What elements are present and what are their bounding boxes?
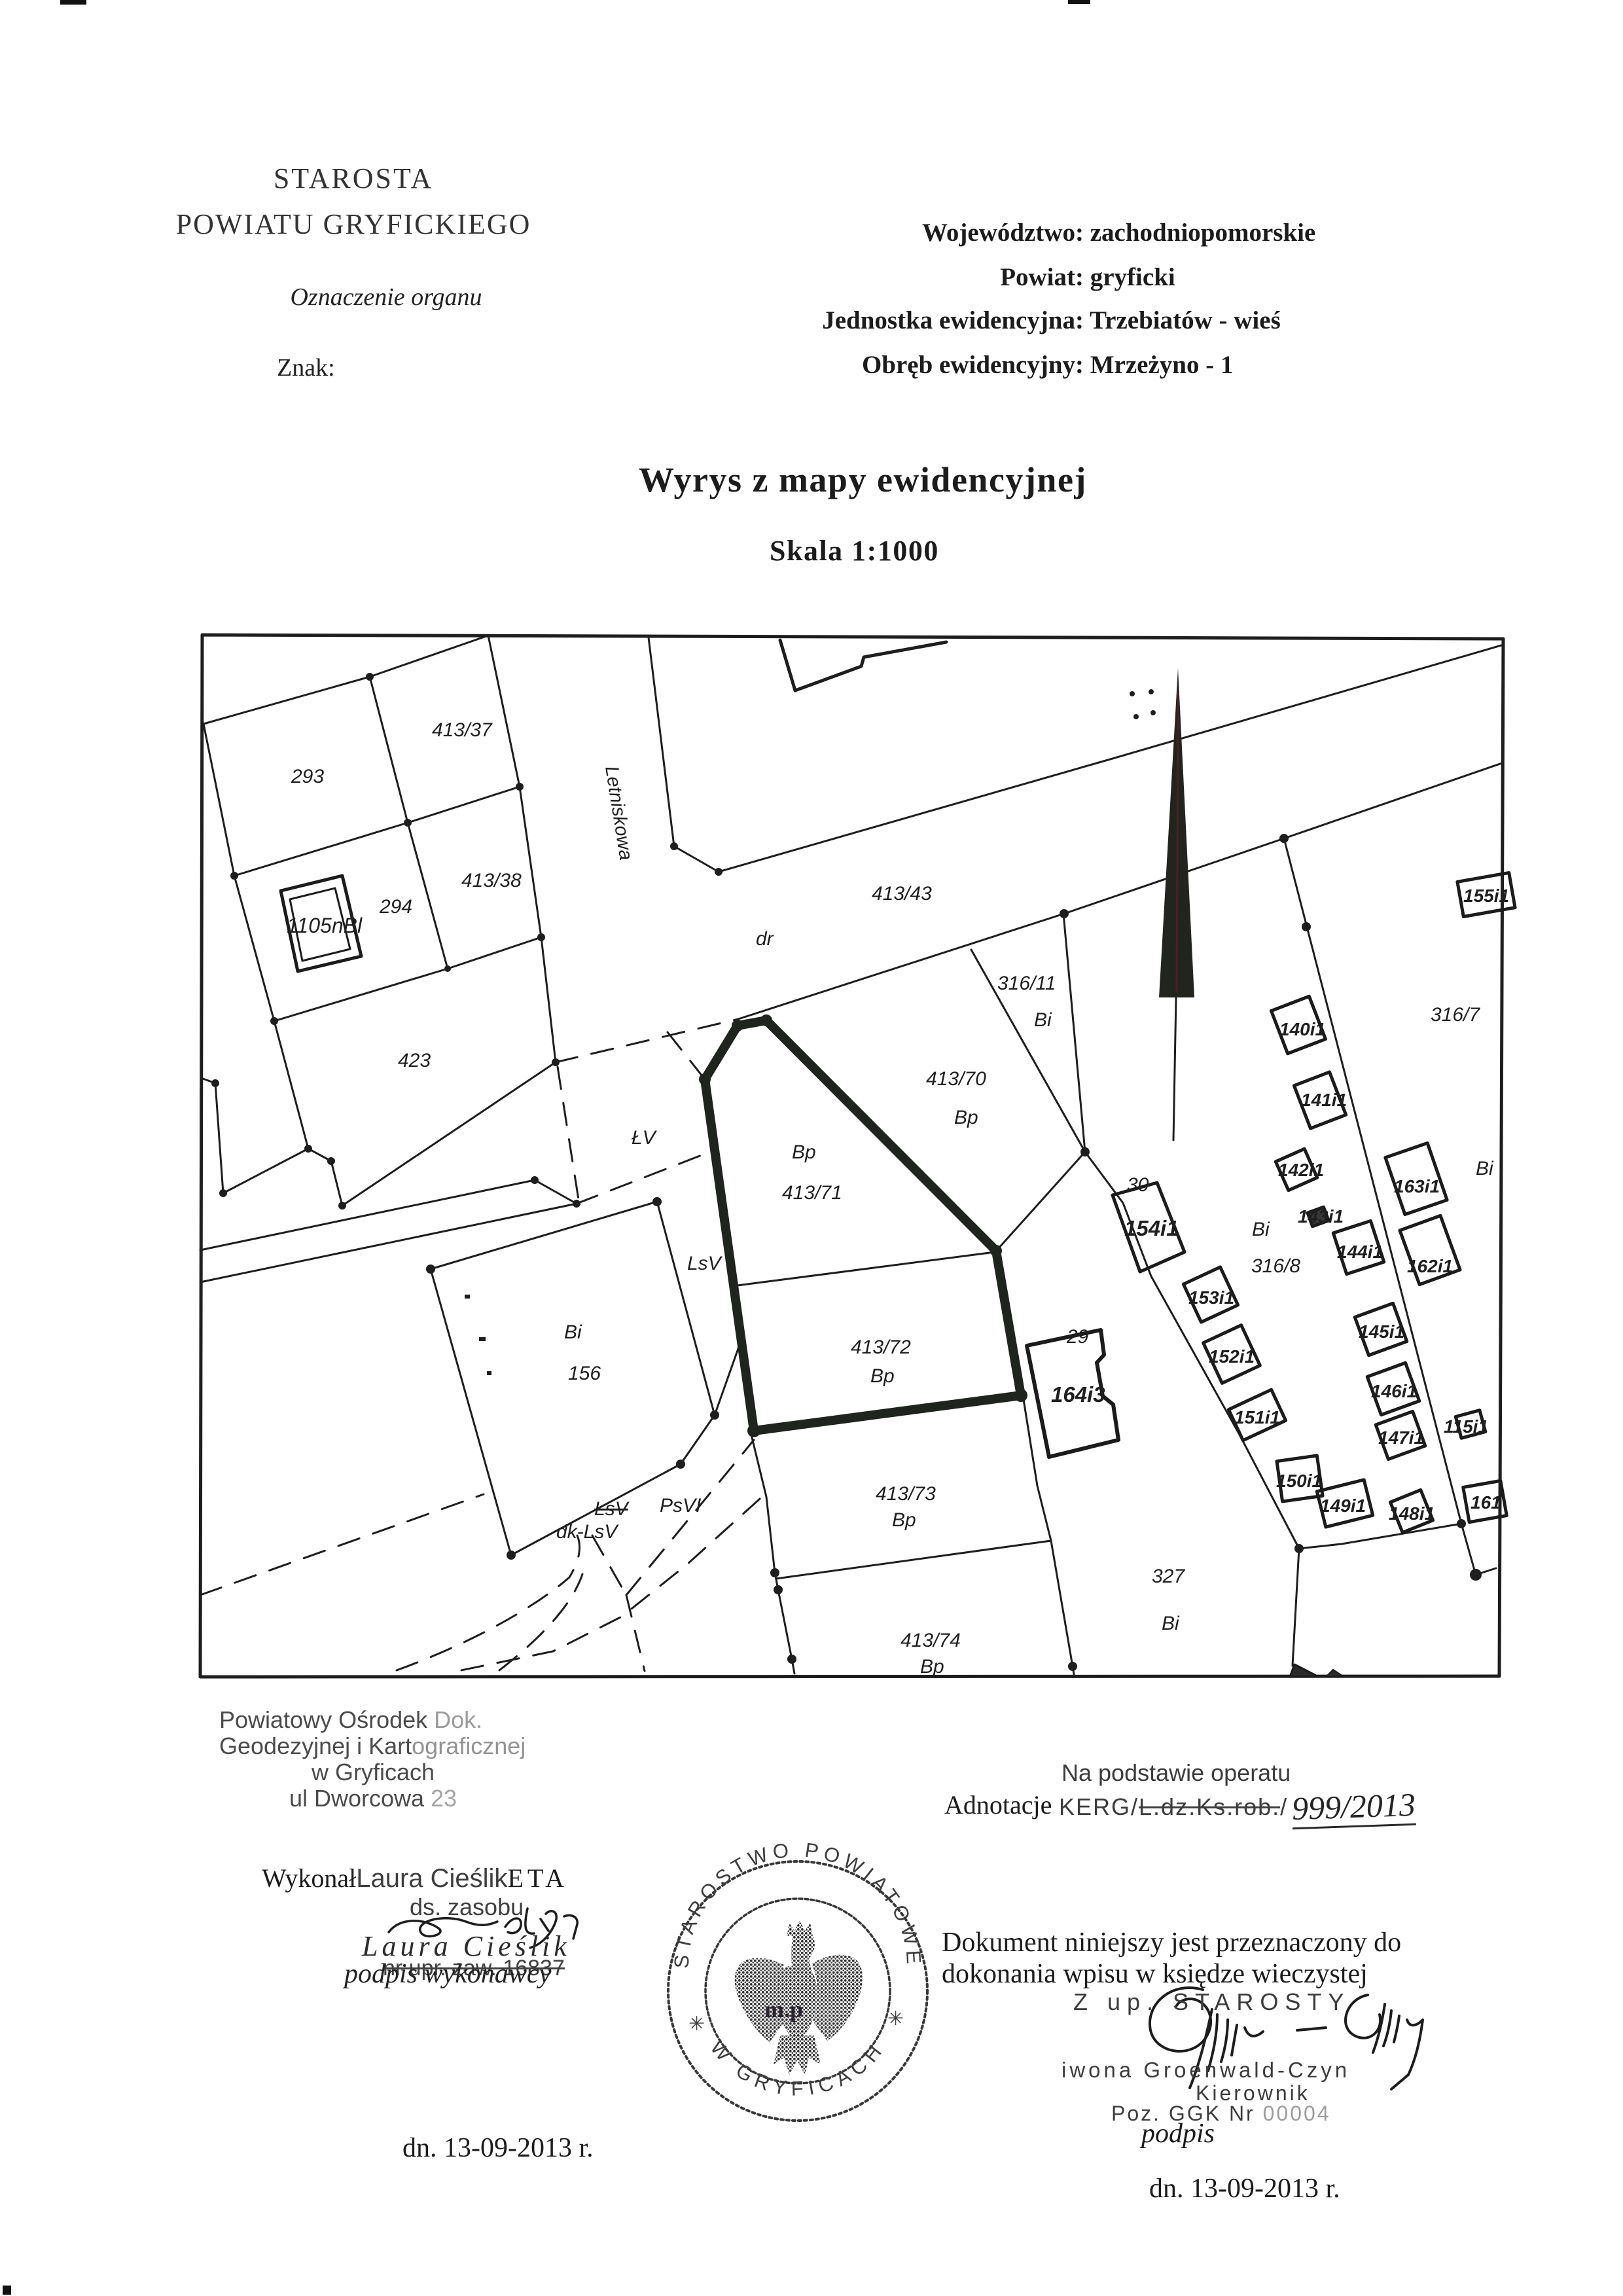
svg-text:Letniskowa: Letniskowa (601, 764, 636, 861)
svg-text:162i1: 162i1 (1407, 1256, 1453, 1276)
svg-text:153i1: 153i1 (1188, 1287, 1234, 1308)
svg-text:163i1: 163i1 (1394, 1176, 1440, 1196)
svg-text:155i1: 155i1 (1463, 886, 1509, 906)
svg-text:145i1: 145i1 (1359, 1321, 1404, 1342)
svg-text:316/7: 316/7 (1431, 1004, 1480, 1026)
svg-text:Bp: Bp (954, 1107, 978, 1128)
svg-text:413/71: 413/71 (782, 1182, 842, 1204)
svg-text:327: 327 (1152, 1566, 1185, 1587)
svg-text:316/11: 316/11 (997, 973, 1056, 994)
svg-text:413/43: 413/43 (872, 883, 932, 905)
svg-text:Bp: Bp (892, 1509, 916, 1531)
svg-text:m.p: m.p (764, 1996, 803, 2022)
svg-text:154i1: 154i1 (1124, 1216, 1179, 1240)
svg-text:30: 30 (1127, 1174, 1149, 1196)
svg-text:Bp: Bp (870, 1365, 895, 1387)
svg-text:✳: ✳ (688, 2013, 705, 2035)
svg-text:152i1: 152i1 (1209, 1346, 1255, 1367)
svg-text:413/73: 413/73 (876, 1483, 936, 1505)
svg-text:141i1: 141i1 (1301, 1090, 1347, 1110)
svg-text:413/37: 413/37 (432, 719, 493, 741)
svg-text:161: 161 (1471, 1492, 1501, 1513)
svg-text:Bi: Bi (1162, 1613, 1180, 1634)
svg-text:413/38: 413/38 (461, 870, 522, 891)
svg-text:156: 156 (568, 1363, 601, 1384)
svg-text:151i1: 151i1 (1234, 1407, 1280, 1427)
svg-text:144i1: 144i1 (1337, 1242, 1383, 1262)
svg-text:PsVI: PsVI (660, 1495, 701, 1516)
svg-text:29: 29 (1066, 1326, 1089, 1348)
svg-text:150i1: 150i1 (1276, 1471, 1322, 1491)
svg-text:LsV: LsV (687, 1253, 723, 1274)
svg-text:413/74: 413/74 (901, 1630, 961, 1651)
svg-text:dk-LsV: dk-LsV (556, 1521, 619, 1543)
svg-text:413/70: 413/70 (926, 1068, 986, 1090)
svg-text:Bp: Bp (920, 1656, 944, 1677)
svg-text:✳: ✳ (887, 2008, 904, 2030)
svg-text:143i1: 143i1 (1298, 1206, 1344, 1227)
svg-text:Bp: Bp (792, 1141, 816, 1163)
svg-text:1105nBl: 1105nBl (287, 914, 363, 937)
svg-text:149i1: 149i1 (1320, 1496, 1366, 1516)
svg-text:423: 423 (398, 1050, 431, 1071)
svg-text:dr: dr (756, 928, 774, 950)
svg-text:316/8: 316/8 (1251, 1255, 1300, 1277)
svg-text:140i1: 140i1 (1279, 1019, 1325, 1039)
svg-text:142i1: 142i1 (1278, 1160, 1324, 1180)
svg-text:147i1: 147i1 (1378, 1427, 1424, 1448)
svg-text:Bi: Bi (1034, 1009, 1052, 1031)
svg-text:293: 293 (291, 766, 324, 787)
svg-text:Bi: Bi (1476, 1158, 1494, 1179)
svg-text:294: 294 (379, 896, 412, 918)
svg-text:413/72: 413/72 (851, 1336, 911, 1358)
svg-text:Bi: Bi (1252, 1219, 1270, 1240)
svg-text:164i3: 164i3 (1051, 1382, 1105, 1407)
svg-text:115i1: 115i1 (1444, 1416, 1488, 1437)
svg-text:LsV: LsV (594, 1498, 630, 1520)
svg-text:Bi: Bi (564, 1321, 582, 1343)
svg-text:146i1: 146i1 (1371, 1381, 1417, 1401)
svg-text:ŁV: ŁV (632, 1127, 658, 1149)
svg-text:148i1: 148i1 (1389, 1503, 1435, 1524)
